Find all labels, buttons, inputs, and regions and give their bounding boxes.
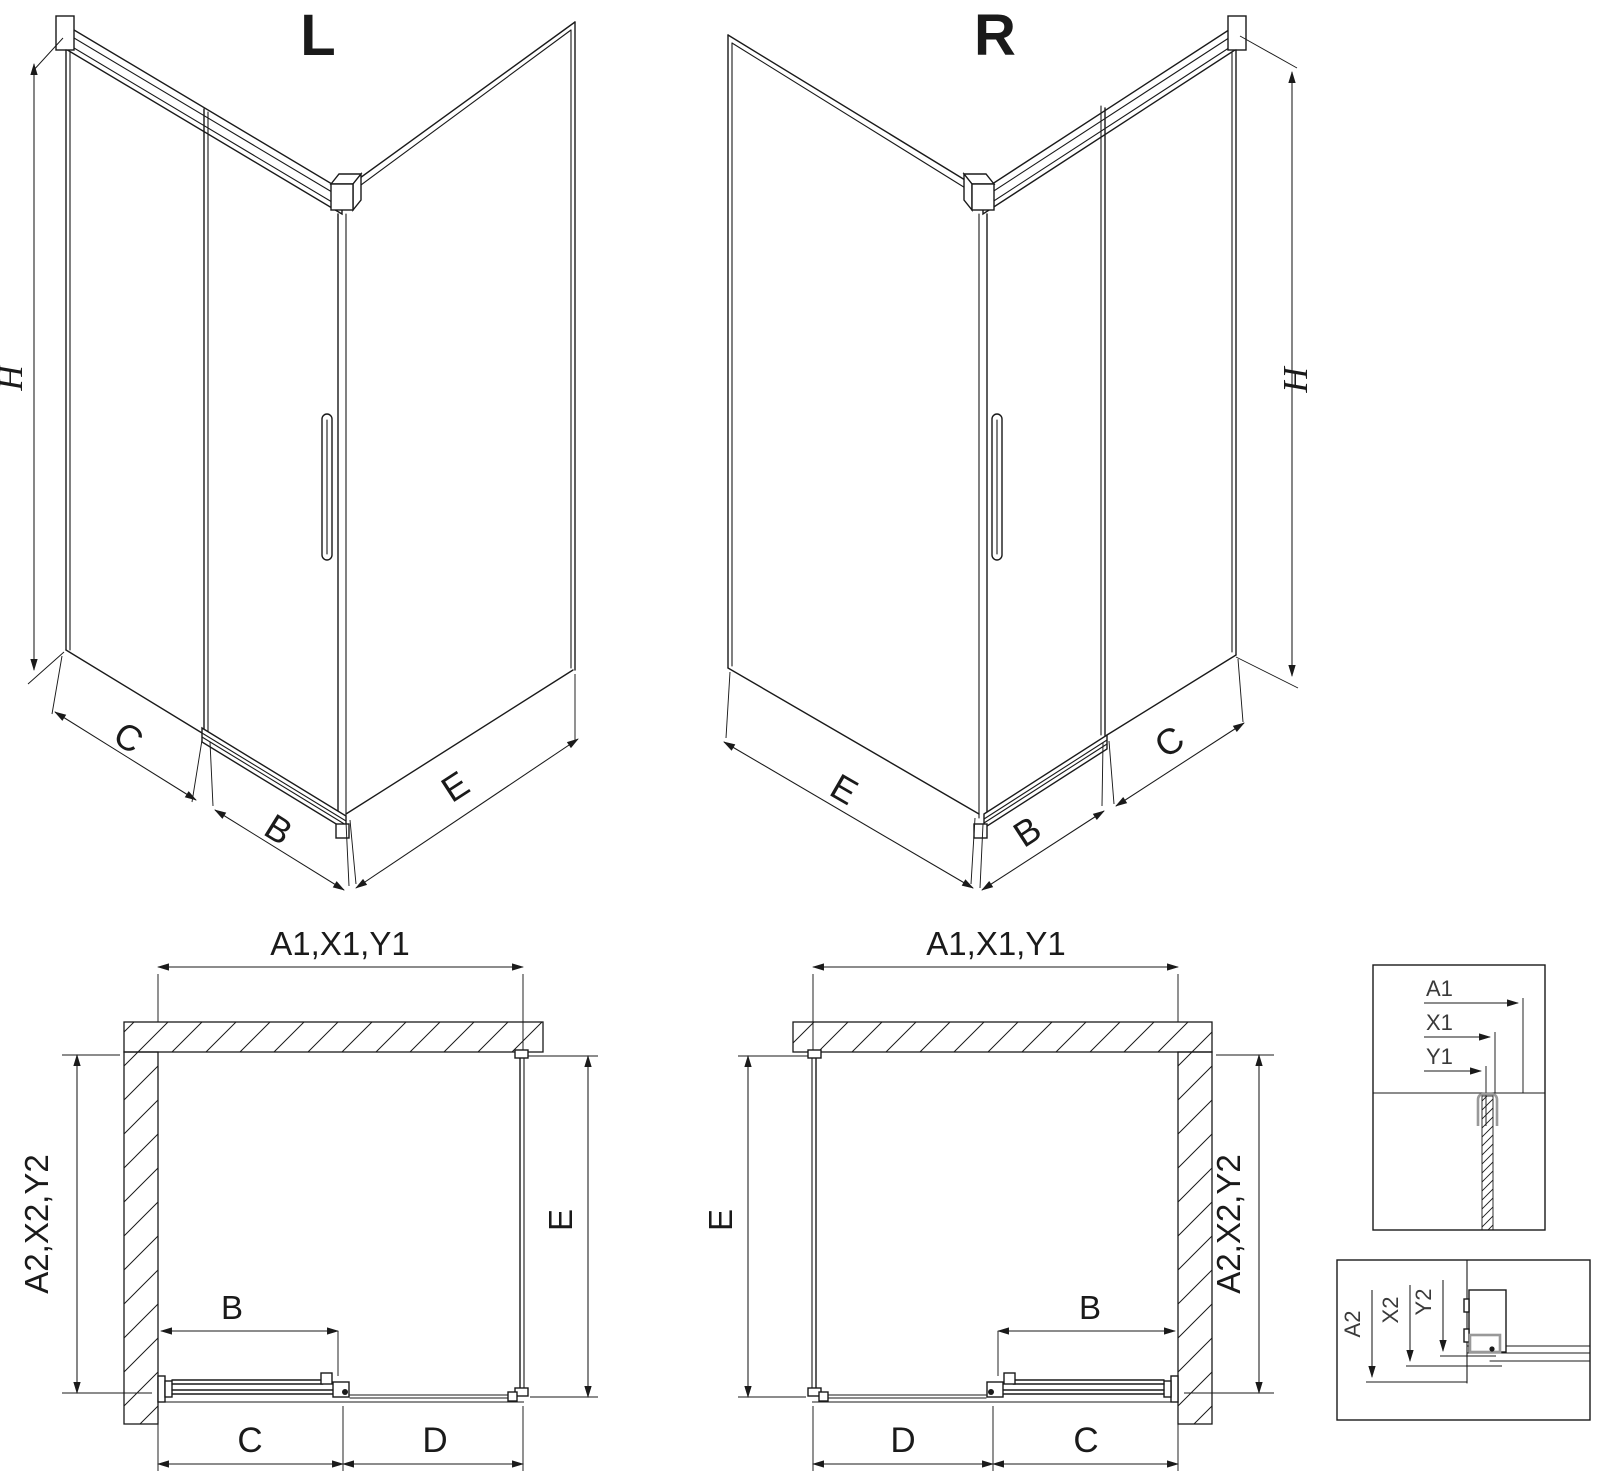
iso-left-track-wall [56, 16, 361, 838]
rail-end-cap [56, 16, 74, 50]
detail-label-y1: Y1 [1426, 1044, 1453, 1069]
dim-label-top-width-planR: A1,X1,Y1 [926, 925, 1065, 962]
plan-left-dimensions: A1,X1,Y1 A2,X2,Y2 E B C D [18, 925, 598, 1471]
wall-profile [1171, 1376, 1178, 1402]
dim-label-side-planR: E [702, 1209, 739, 1231]
detail-bottom-roller: A2 X2 Y2 [1337, 1260, 1590, 1420]
rail-end-cap [1228, 16, 1246, 50]
dim-label-depth-planR: A2,X2,Y2 [1210, 1154, 1247, 1293]
dim-label-height-R: H [1276, 366, 1315, 394]
dim-label-side-L: E [434, 763, 476, 810]
detail-label-y2: Y2 [1411, 1289, 1436, 1316]
dim-label-far-planL: D [422, 1421, 447, 1460]
dim-label-near-planL: C [237, 1421, 262, 1460]
view-title-left: L [300, 3, 335, 68]
iso-right-side-panel [728, 35, 983, 814]
iso-left-side-panel [342, 22, 575, 814]
top-rail [983, 24, 1238, 214]
dim-label-door-L: B [258, 806, 300, 853]
bottom-rail [984, 735, 1107, 828]
dim-label-top-width-planL: A1,X1,Y1 [270, 925, 409, 962]
plan-left-door-assembly [158, 1373, 524, 1402]
plan-left-side-panel [515, 1050, 528, 1396]
dim-label-fixed-R: C [1147, 717, 1191, 766]
bottom-track [350, 1395, 516, 1398]
plan-right-side-panel [808, 1050, 821, 1396]
view-title-right: R [974, 3, 1016, 68]
wall-top [793, 1022, 1212, 1052]
detail-frame [1373, 965, 1545, 1230]
wall-right [1178, 1052, 1212, 1424]
iso-view-left: L H [0, 3, 578, 890]
detail-top-profile: A1 X1 Y1 [1373, 965, 1545, 1230]
dim-label-door-planR: B [1079, 1289, 1101, 1326]
wall-left [124, 1052, 158, 1424]
dim-label-height-L: H [0, 364, 30, 392]
technical-drawing-page: L H [0, 0, 1600, 1474]
dim-label-side-planL: E [542, 1209, 579, 1231]
roller [1004, 1373, 1015, 1384]
corner-bracket [331, 184, 353, 210]
iso-right-track-wall [964, 16, 1246, 838]
dim-label-depth-planL: A2,X2,Y2 [18, 1154, 55, 1293]
shower-enclosure-drawing: L H [0, 0, 1600, 1474]
dim-label-fixed-L: C [107, 713, 151, 762]
dim-label-side-R: E [824, 765, 865, 813]
dim-label-near-planR: C [1073, 1421, 1098, 1460]
detail-label-x2: X2 [1378, 1297, 1403, 1324]
wall-profile [158, 1376, 165, 1402]
wall-top [124, 1022, 543, 1052]
detail-label-x1: X1 [1426, 1010, 1453, 1035]
iso-right-dimensions: H E B C [724, 36, 1315, 890]
plan-view-left: A1,X1,Y1 A2,X2,Y2 E B C D [18, 925, 598, 1471]
plan-right-door-assembly [812, 1373, 1178, 1402]
roller [321, 1373, 332, 1384]
dim-label-far-planR: D [890, 1421, 915, 1460]
corner-foot [974, 824, 987, 838]
detail-label-a1: A1 [1426, 976, 1453, 1001]
iso-view-right: R H [724, 3, 1315, 890]
dim-label-door-R: B [1006, 808, 1048, 855]
detail-label-a2: A2 [1340, 1311, 1365, 1338]
glass-panel-section [1482, 1096, 1493, 1230]
plan-view-right: A1,X1,Y1 A2,X2,Y2 E B D C [702, 925, 1274, 1471]
corner-bracket [972, 184, 994, 210]
bottom-track [820, 1395, 986, 1398]
dim-label-door-planL: B [221, 1289, 243, 1326]
